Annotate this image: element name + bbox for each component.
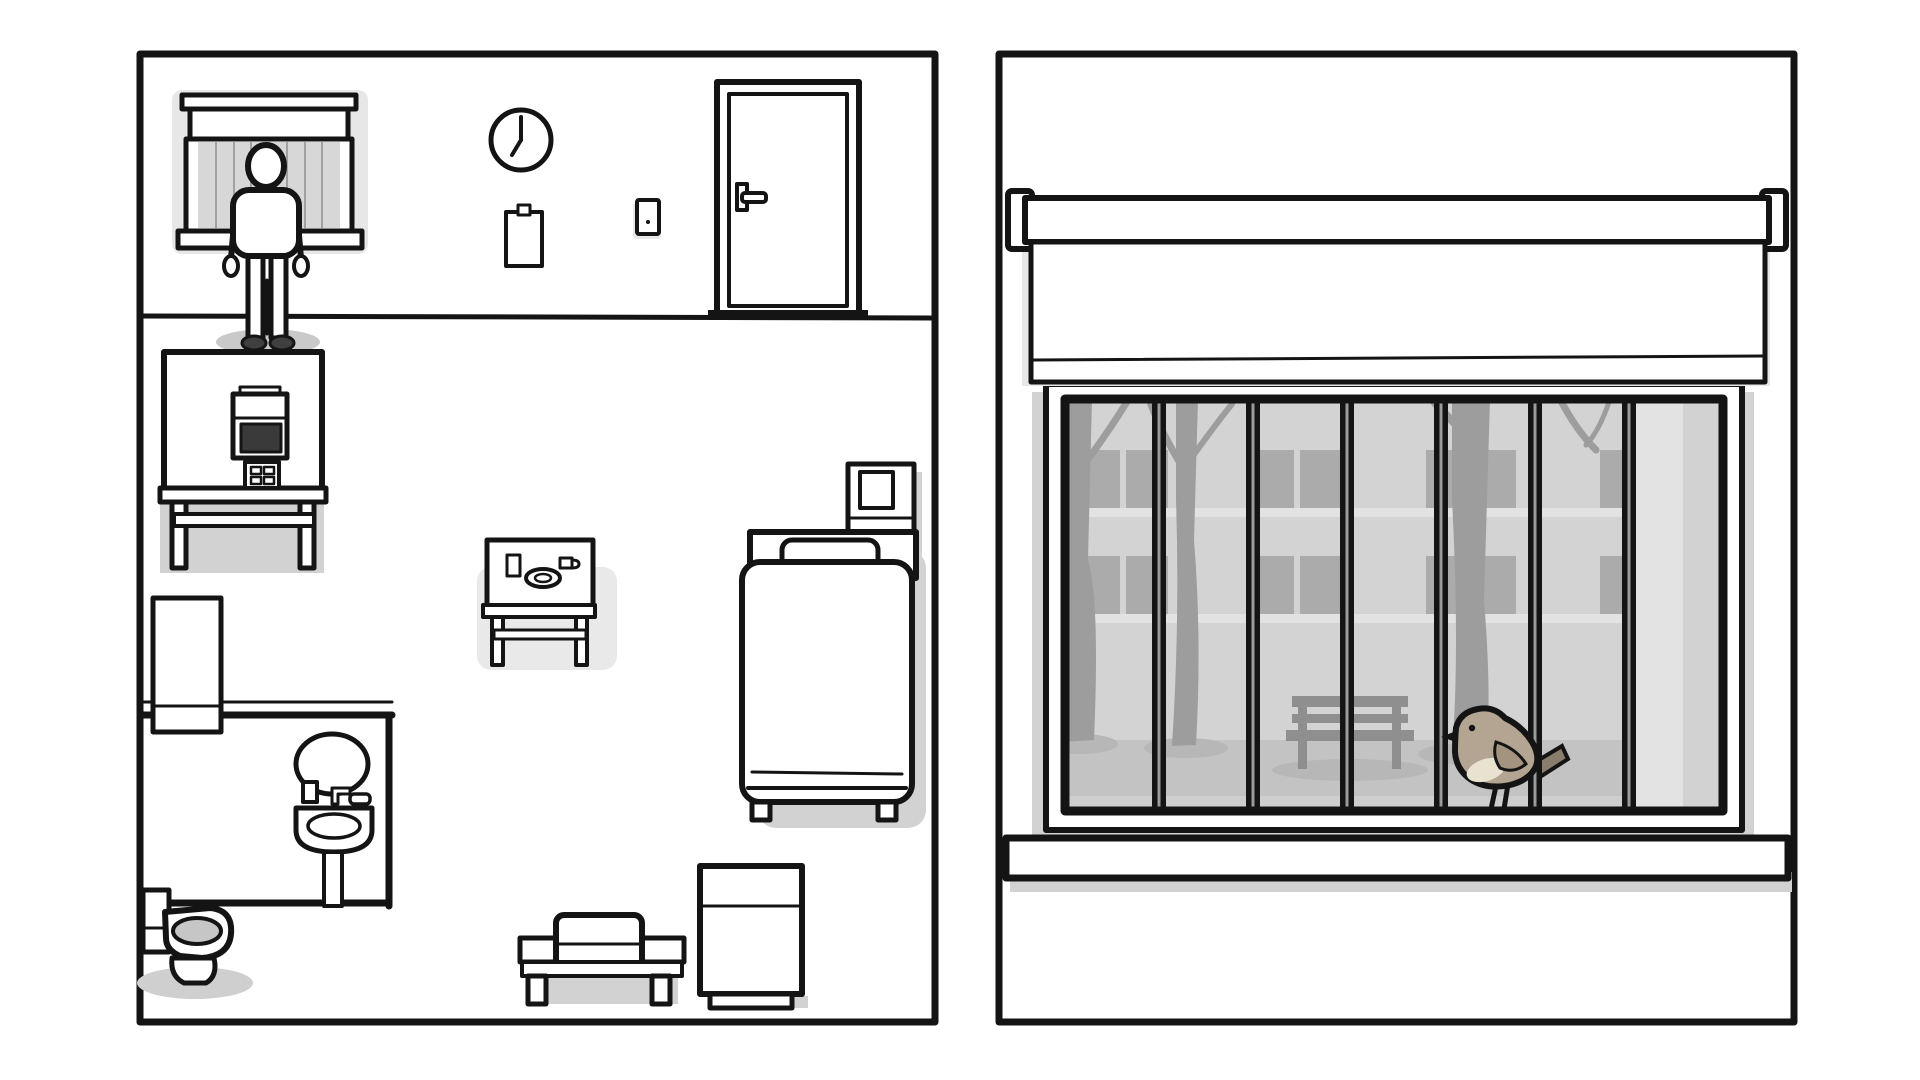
button-2[interactable]	[264, 467, 274, 474]
switch-dot	[646, 220, 650, 224]
bed-left-foot	[752, 802, 770, 820]
blind-fabric[interactable]	[1031, 242, 1765, 382]
door[interactable]	[708, 82, 868, 320]
door-threshold	[708, 310, 868, 320]
cabinet-body	[700, 866, 802, 994]
windowsill	[1006, 838, 1792, 892]
bed[interactable]	[742, 532, 926, 828]
sink-cup[interactable]	[303, 782, 317, 802]
toilet-seat	[173, 918, 221, 944]
window-valance	[190, 109, 348, 139]
sill-ledge	[1006, 838, 1788, 878]
button-1[interactable]	[251, 467, 261, 474]
man-head	[248, 145, 284, 187]
drinking-glass[interactable]	[507, 555, 520, 576]
tv[interactable]	[233, 387, 287, 458]
sink-basin	[308, 814, 360, 838]
cabinet[interactable]	[700, 866, 808, 1008]
cabinet-plinth	[710, 994, 792, 1008]
clipboard-clip	[518, 205, 530, 215]
cup[interactable]	[560, 558, 572, 568]
man-left-foot	[242, 336, 266, 350]
sink-pedestal	[324, 852, 342, 906]
button-4[interactable]	[264, 477, 274, 484]
roller-bar	[1025, 198, 1769, 242]
blanket-fold	[752, 772, 902, 774]
wall-clock[interactable]	[491, 110, 551, 170]
table-left-leg	[492, 617, 503, 665]
tv-desk[interactable]	[160, 352, 326, 573]
pillar-dark	[1683, 399, 1723, 811]
fridge[interactable]	[153, 598, 221, 732]
man-right-hand	[294, 256, 308, 276]
door-handle-lever	[742, 193, 766, 202]
bird-eye	[1469, 725, 1475, 731]
tv-screen[interactable]	[241, 424, 281, 452]
man-right-leg	[271, 250, 286, 338]
outside-scene	[1042, 399, 1723, 812]
table-right-leg	[576, 617, 587, 665]
window-panel	[999, 54, 1794, 1022]
plate-center	[535, 574, 551, 582]
toilet-base	[172, 958, 215, 983]
clipboard[interactable]	[506, 205, 542, 266]
man-left-leg	[248, 250, 263, 338]
table-crossbar	[494, 630, 586, 639]
desk-right-leg	[300, 502, 314, 568]
roller-blind[interactable]	[1008, 191, 1786, 386]
sofa-right-leg	[652, 976, 670, 1004]
bed-right-foot	[878, 802, 896, 820]
sink-soap	[350, 794, 370, 804]
nightstand-item	[860, 472, 893, 508]
sofa-left-leg	[528, 976, 546, 1004]
room-panel	[137, 54, 935, 1022]
light-switch[interactable]	[633, 200, 661, 239]
desk-left-leg	[172, 502, 186, 568]
desk-crossbar	[174, 514, 314, 526]
button-3[interactable]	[251, 477, 261, 484]
big-window[interactable]	[1032, 384, 1754, 840]
bed-mattress	[742, 562, 912, 802]
man-right-foot	[270, 336, 294, 350]
man-left-hand	[224, 256, 238, 276]
tv-remote-buttons[interactable]	[245, 462, 279, 488]
man-torso	[233, 190, 299, 256]
tree-3	[1452, 399, 1490, 753]
game-stage	[0, 0, 1920, 1080]
